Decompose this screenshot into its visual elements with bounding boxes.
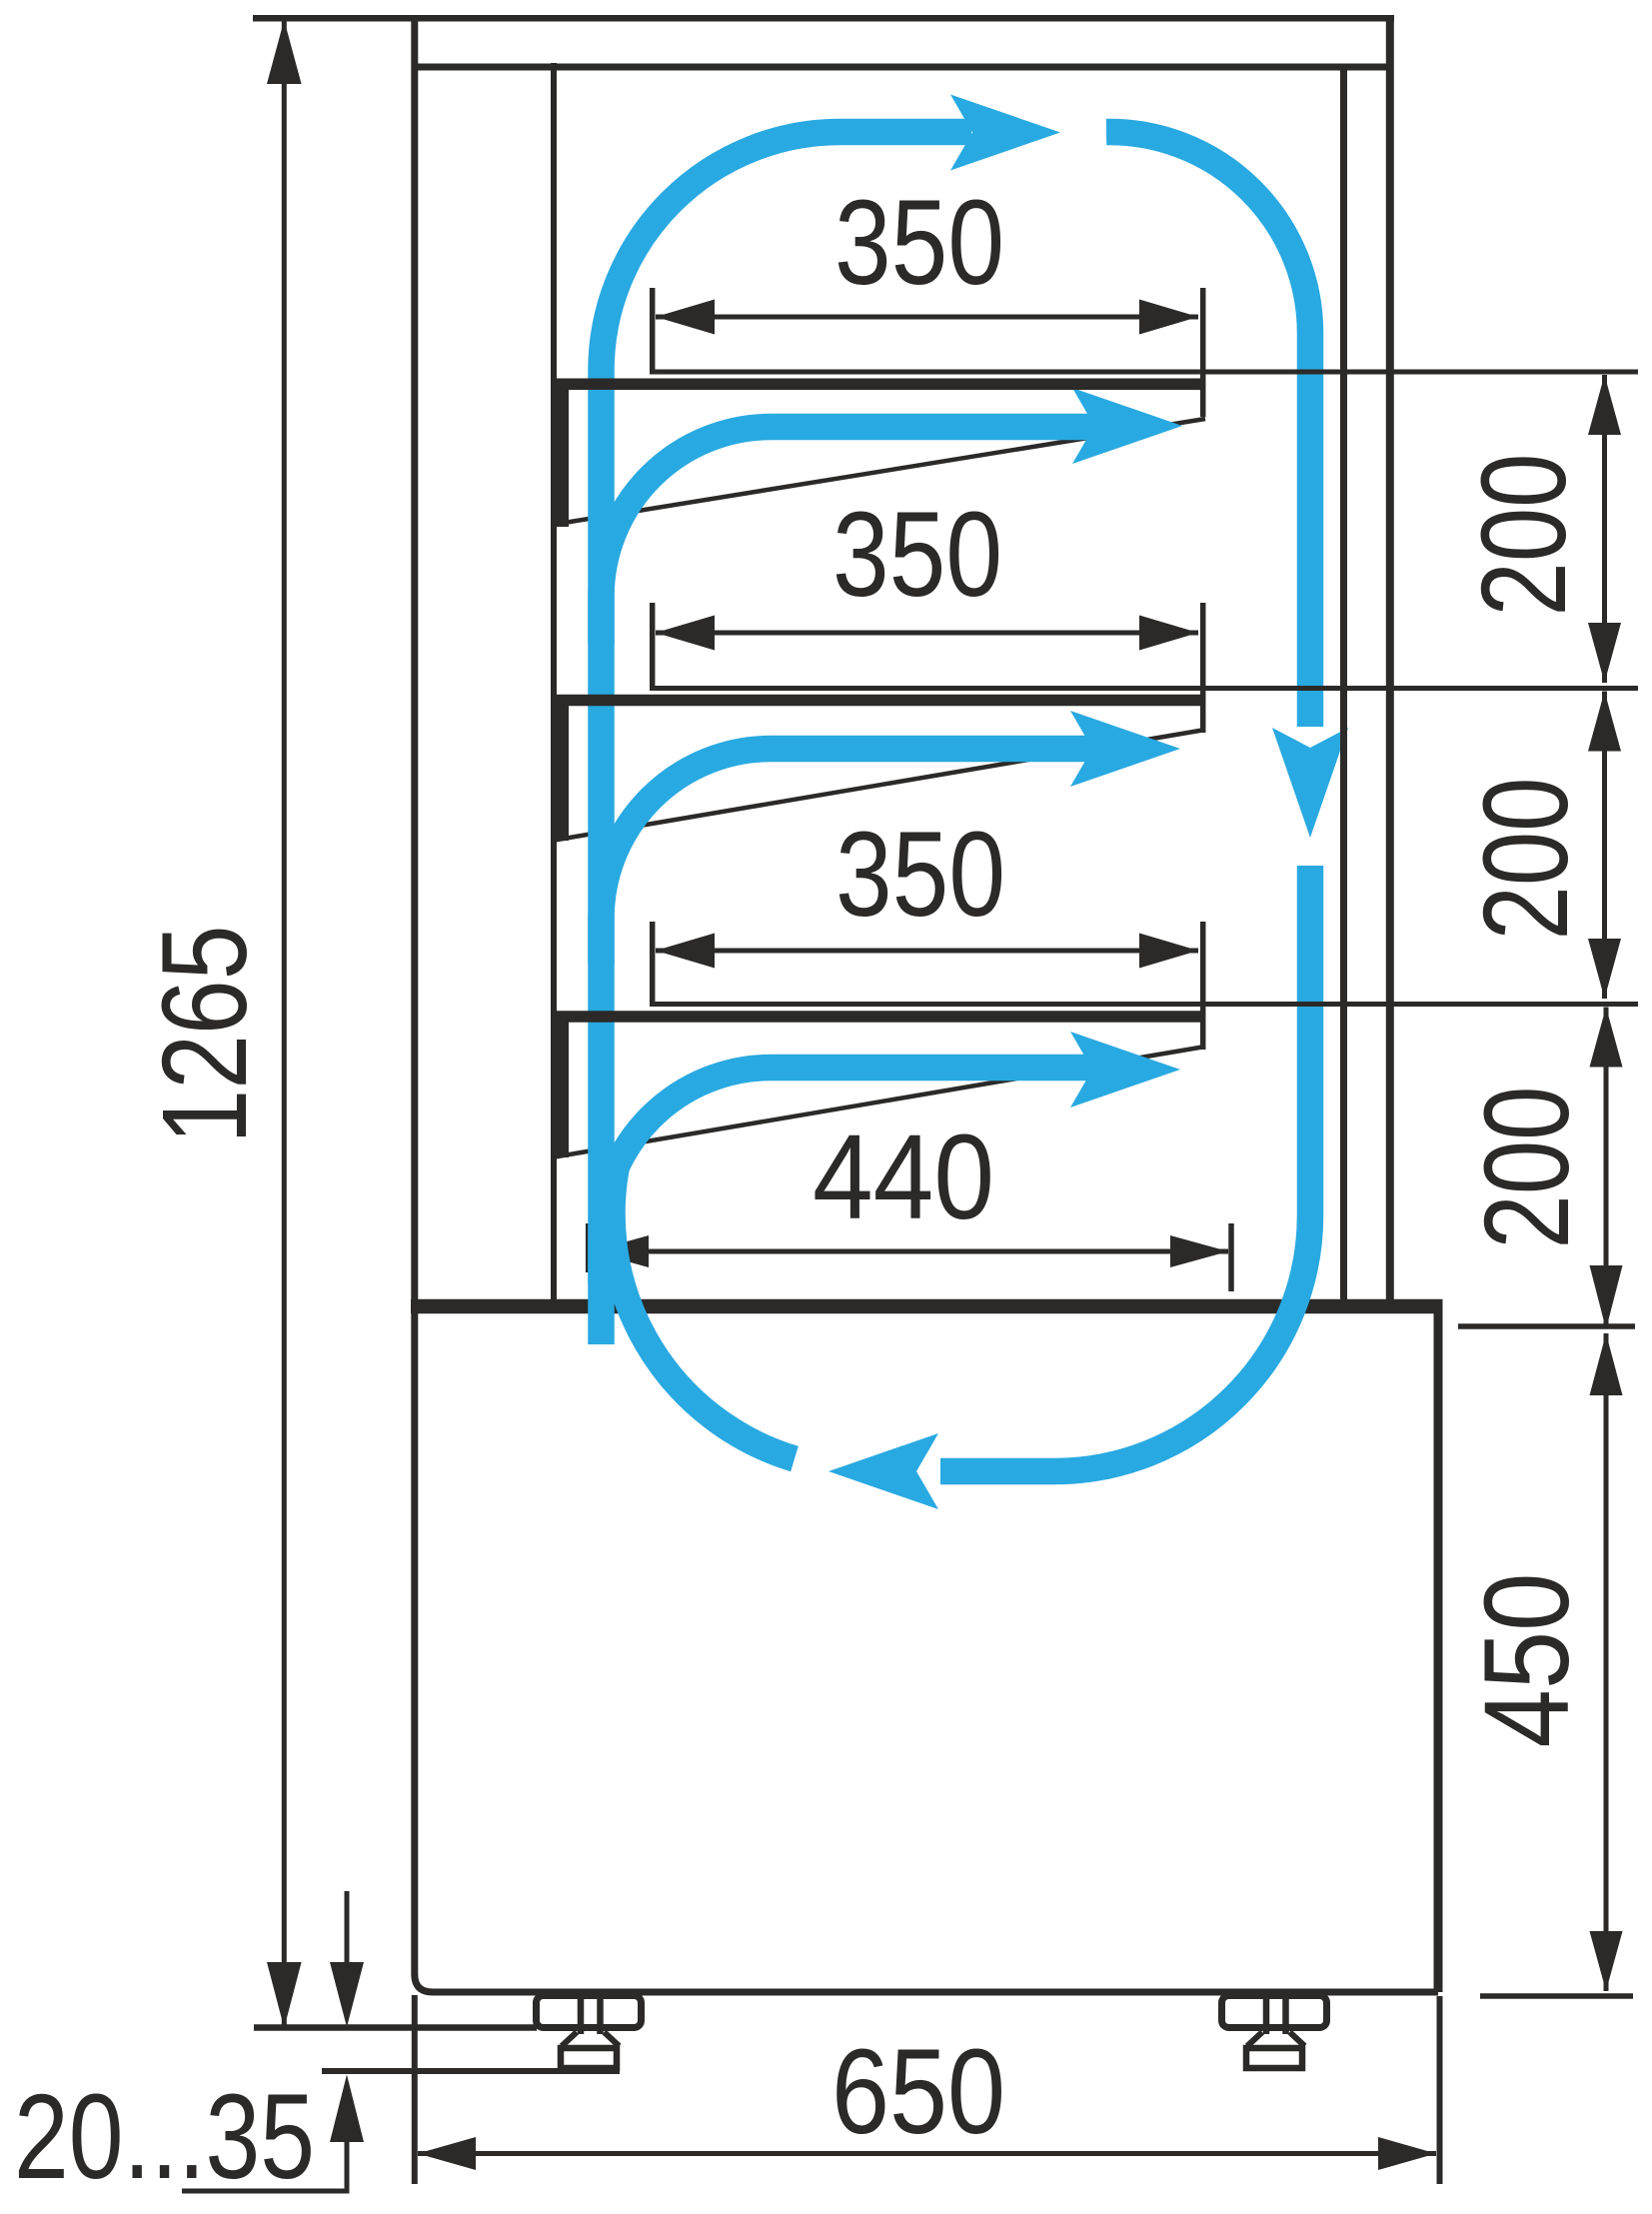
- svg-text:1265: 1265: [136, 926, 272, 1144]
- svg-text:450: 450: [1458, 1573, 1594, 1748]
- svg-text:200: 200: [1455, 454, 1591, 617]
- svg-text:350: 350: [832, 486, 1002, 622]
- svg-text:650: 650: [831, 2023, 1005, 2159]
- svg-text:200: 200: [1458, 1087, 1594, 1249]
- svg-text:20...35: 20...35: [14, 2068, 315, 2204]
- svg-text:440: 440: [813, 1108, 994, 1244]
- svg-text:350: 350: [835, 806, 1005, 942]
- svg-text:200: 200: [1457, 778, 1593, 941]
- svg-text:350: 350: [834, 174, 1004, 310]
